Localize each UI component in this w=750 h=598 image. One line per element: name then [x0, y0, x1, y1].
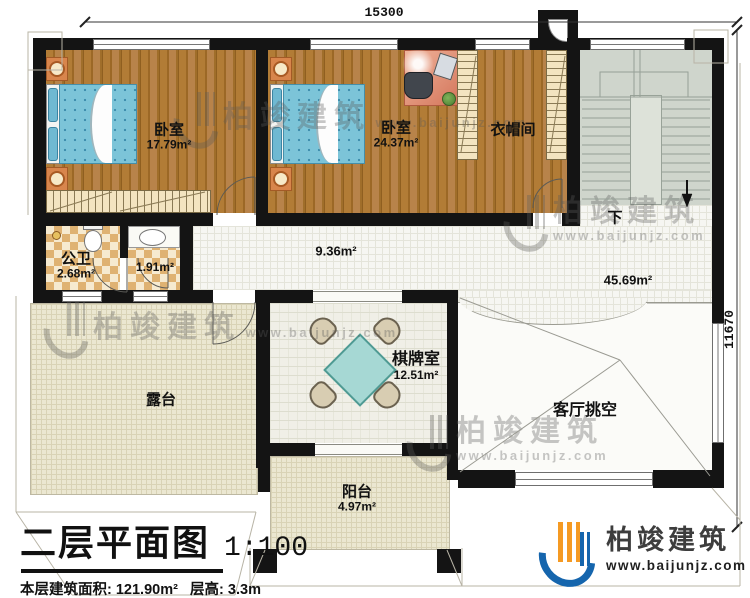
living-void-label: 客厅挑空: [553, 402, 617, 420]
washroom-label: 1.91m²: [136, 261, 174, 275]
plan-title: 二层平面图: [20, 514, 210, 566]
window: [310, 39, 398, 50]
floor-area-value: 121.90m²: [116, 582, 178, 598]
nightstand: [46, 57, 68, 81]
wall-chess-west: [256, 290, 270, 468]
wash-basin: [139, 229, 166, 246]
bedroom2-label: 卧室 24.37m²: [374, 119, 419, 150]
window: [475, 39, 530, 50]
brand-name: 柏竣建筑: [606, 527, 747, 554]
desk-chair: [404, 72, 433, 99]
pillow: [272, 88, 282, 122]
potted-plant: [442, 92, 456, 106]
window: [62, 291, 102, 302]
corridor-label: 9.36m²: [315, 245, 356, 260]
bedroom1-label: 卧室 17.79m²: [147, 121, 192, 152]
cloakroom-wardrobe-right: [546, 50, 567, 160]
public-bath-label: 公卫 2.68m²: [57, 250, 95, 281]
stairs-down-label: 下: [607, 209, 622, 226]
nightstand: [46, 167, 68, 191]
plan-scale: 1:100: [224, 533, 308, 564]
toilet: [84, 230, 102, 252]
pillow: [48, 88, 58, 122]
cloakroom-label: 衣帽间: [490, 121, 535, 138]
wall-balcony-pier: [258, 456, 270, 492]
nightstand: [270, 167, 292, 191]
wall-chess-east: [447, 290, 458, 480]
floor-drain: [52, 231, 61, 240]
window: [93, 39, 210, 50]
chess-room-label: 棋牌室 12.51m²: [392, 351, 440, 383]
balcony-label: 阳台 4.97m²: [338, 483, 376, 514]
stair-landing-strip: [630, 95, 662, 205]
floor-height-value: 3.3m: [228, 582, 261, 598]
window: [515, 472, 653, 486]
title-block: 二层平面图 1:100 本层建筑面积: 121.90m² 层高: 3.3m: [20, 514, 308, 598]
wall-stairs-west: [567, 38, 580, 223]
wall-bath-south: [33, 290, 193, 303]
wall-bath-divider: [120, 226, 128, 258]
wall-chess-south-east: [402, 443, 447, 456]
wall-left: [33, 38, 46, 303]
window: [133, 291, 168, 302]
pillow: [272, 127, 282, 161]
wall-chess-south-west: [256, 443, 315, 456]
column: [437, 549, 461, 573]
wall-right-lower: [712, 443, 724, 488]
dimension-top: 15300: [364, 5, 403, 20]
nightstand: [270, 57, 292, 81]
wardrobe: [46, 190, 211, 213]
terrace-floor: [30, 303, 258, 495]
floor-height-label: 层高:: [190, 582, 224, 598]
title-underline: [21, 569, 223, 573]
opening-sill: [313, 291, 402, 302]
floor-area-label: 本层建筑面积:: [20, 582, 112, 598]
wall-bedroom-divider: [256, 38, 268, 226]
hall-floor-under-stairs: [580, 205, 712, 226]
wall-bedroom1-south: [33, 213, 213, 226]
brand-website: www.baijunjz.com: [606, 559, 747, 573]
wall-corridor-south: [193, 290, 213, 303]
brand-logo-icon: [540, 518, 596, 582]
brand-logo: 柏竣建筑 www.baijunjz.com: [540, 518, 747, 582]
dimension-right: 11670: [722, 310, 737, 349]
pillow: [48, 127, 58, 161]
wall-void-south-west: [458, 470, 515, 488]
floor-plan-canvas: 柏竣建筑 www.baijunjz.com 柏竣建筑 www.baijunjz.…: [0, 0, 750, 598]
cloakroom-wardrobe-left: [457, 50, 478, 160]
wall-bedroom2-south: [268, 213, 533, 226]
living-void-floor: [458, 303, 712, 470]
wall-void-south-east: [653, 470, 712, 488]
terrace-label: 露台: [146, 391, 176, 408]
hall-label: 45.69m²: [604, 274, 652, 289]
opening-sill: [315, 444, 402, 455]
wall-right: [712, 38, 724, 323]
window: [590, 39, 685, 50]
